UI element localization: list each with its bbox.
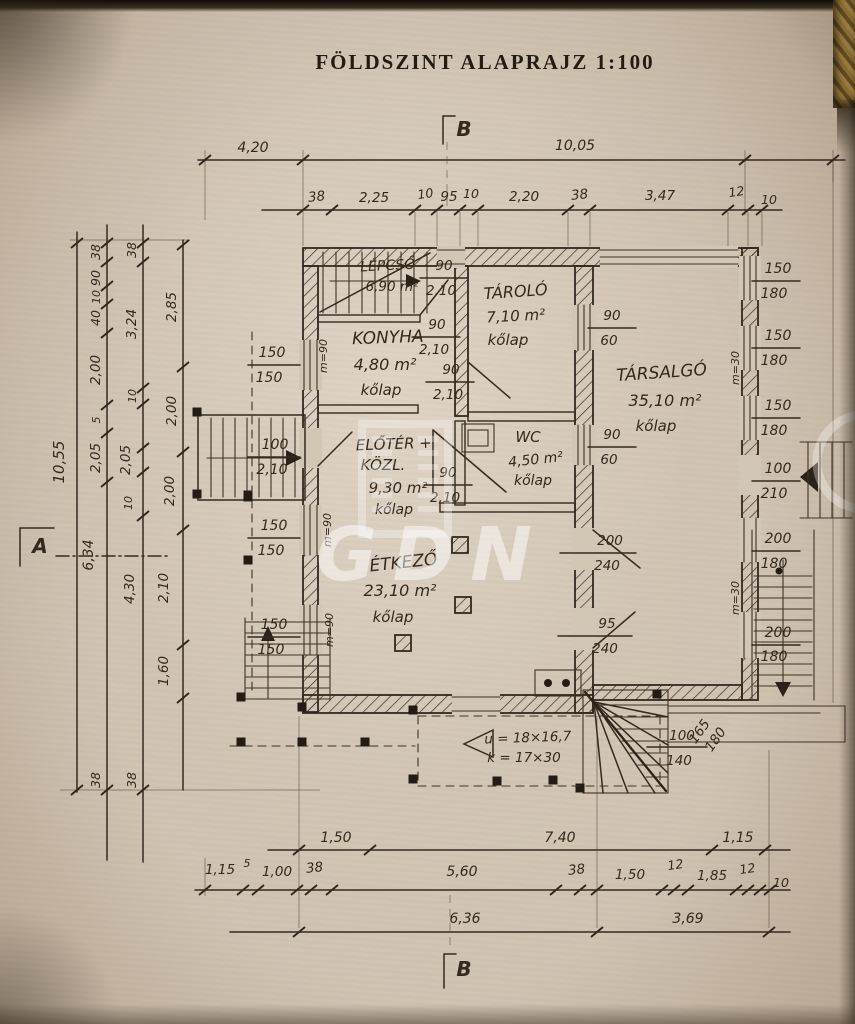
dim-label: 150	[765, 261, 792, 277]
dim-label: 150	[261, 617, 288, 633]
dim-label: 2,10	[156, 573, 172, 603]
dim-label: 2,00	[162, 476, 178, 506]
dim-label: 2,10	[426, 283, 456, 299]
room-floor: kőlap	[488, 331, 529, 349]
photo-bottom-edge	[0, 1004, 855, 1024]
dim-label: 150	[256, 370, 283, 386]
dim-label: 90	[88, 270, 103, 286]
dim-label: 180	[761, 649, 788, 665]
room-floor: kőlap	[636, 417, 677, 435]
dim-label: 180	[761, 286, 788, 302]
photo-corner-shadow-tl	[0, 0, 140, 150]
dim-label: 1,60	[156, 656, 172, 686]
dim-label: 1,50	[615, 867, 645, 883]
dim-label: 95	[440, 189, 457, 205]
floor-plan-drawing: 4,20 10,05 38 2,25 10 95 10 2,20 38 3,47…	[0, 0, 855, 1024]
photo-corner-fabric-tr	[833, 0, 855, 108]
dim-label: 60	[600, 452, 617, 468]
parapet-label: m=90	[317, 339, 330, 373]
watermark-text: GDN	[316, 512, 548, 598]
dim-label: 3,69	[672, 911, 703, 927]
dim-label: 1,85	[697, 868, 727, 884]
dim-label: 3,24	[124, 309, 140, 339]
dim-label: 2,85	[164, 292, 180, 322]
dim-label: 150	[261, 518, 288, 534]
dim-label: 5	[90, 417, 103, 424]
section-mark-b-top: B	[456, 117, 471, 141]
dim-label: 5,60	[446, 864, 477, 880]
dim-label: 90	[435, 258, 452, 274]
dim-label: 10	[761, 192, 777, 207]
top-dimension-lines	[198, 155, 845, 215]
dim-label: 10	[463, 186, 479, 201]
dim-label: 2,10	[256, 462, 287, 478]
dim-label: 38	[307, 188, 326, 206]
dim-label: 90	[428, 317, 445, 333]
dim-label: 200	[765, 531, 792, 547]
dim-label: 38	[88, 244, 103, 260]
dim-label: 1,15	[205, 862, 235, 878]
dim-label: 90	[603, 308, 620, 324]
photo-corner-shadow-bl	[0, 904, 120, 1024]
room-name: WC	[515, 428, 541, 446]
room-name: TÁRSALGÓ	[616, 358, 708, 386]
left-dimension-labels: 10,55 38 90 10 40 2,00 5 2,05 6,34 38 38…	[50, 242, 180, 788]
dim-label: 240	[592, 641, 618, 657]
dim-label: 5	[244, 857, 251, 870]
dim-label: 4,30	[122, 574, 138, 604]
dim-label: 12	[727, 183, 745, 200]
dim-label: 90	[442, 362, 459, 378]
parapet-label: m=30	[729, 351, 742, 385]
dim-label: 6,36	[449, 911, 480, 927]
dim-label: 1,15	[722, 830, 753, 846]
dim-label: 40	[88, 310, 103, 326]
top-dimension-labels: 4,20 10,05 38 2,25 10 95 10 2,20 38 3,47…	[237, 138, 777, 207]
stair-note: u = 18×16,7	[484, 728, 572, 747]
dim-label: 2,05	[118, 445, 134, 475]
bottom-dimension-labels: 1,50 7,40 1,15 1,15 5 1,00 38 5,60 38 1,…	[205, 830, 789, 927]
dim-label: 10	[773, 875, 789, 890]
dim-label: 1,50	[320, 830, 351, 846]
dim-label: 60	[600, 333, 617, 349]
dim-label: 2,00	[88, 355, 104, 385]
dim-label: 2,25	[359, 190, 389, 206]
dim-label: 180	[761, 556, 788, 572]
dim-label: 4,20	[237, 140, 268, 156]
dim-label: 38	[124, 772, 139, 788]
dim-label: 38	[570, 186, 589, 204]
dim-label: 200	[597, 533, 623, 549]
parapet-label: m=30	[729, 581, 742, 615]
dim-label: 2,10	[433, 387, 463, 403]
dim-label: 38	[567, 861, 586, 879]
dim-label: 10	[416, 185, 434, 202]
dim-label: 150	[258, 642, 285, 658]
dim-label: 240	[594, 558, 620, 574]
dim-label: 150	[259, 345, 286, 361]
dim-label: 150	[765, 398, 792, 414]
dim-label: 1,00	[262, 864, 292, 880]
stair-note: k = 17×30	[487, 750, 560, 766]
dim-label: 95	[598, 616, 615, 632]
dim-label: 140	[666, 753, 692, 769]
dim-label: 2,00	[164, 396, 180, 426]
room-area: 35,10 m²	[629, 391, 702, 410]
parapet-label: m=90	[323, 613, 336, 647]
dim-label: 12	[666, 856, 684, 873]
room-area: 6,90 m²	[366, 279, 420, 295]
room-area: 7,10 m²	[486, 305, 546, 326]
room-name: KONYHA	[352, 327, 424, 349]
dim-label: 180	[761, 423, 788, 439]
room-area: 4,80 m²	[354, 355, 417, 374]
room-floor: kőlap	[361, 381, 402, 399]
section-mark-b-bottom: B	[456, 957, 471, 981]
dim-label: 200	[765, 625, 792, 641]
dim-label: 7,40	[544, 830, 575, 846]
section-mark-a: A	[30, 534, 47, 558]
dim-label: 38	[124, 242, 139, 258]
dim-label: 2,20	[509, 189, 539, 205]
dim-label: 10	[126, 389, 139, 403]
stairs-entry-left	[193, 408, 306, 501]
dim-label: 10	[122, 496, 135, 510]
dim-label: 10	[90, 290, 103, 304]
left-opening-labels: 150 150 100 2,10 150 150 150 150	[248, 345, 300, 658]
room-name: TÁROLÓ	[483, 280, 548, 303]
dim-label: 150	[258, 543, 285, 559]
dim-label: 90	[603, 427, 620, 443]
photo-right-edge	[839, 100, 855, 1024]
dim-label: 10,05	[555, 138, 595, 154]
dim-label: 100	[262, 437, 289, 453]
dim-label: 150	[765, 328, 792, 344]
photographed-drawing: FÖLDSZINT ALAPRAJZ 1:100	[0, 0, 855, 1024]
dim-label: 3,47	[645, 188, 675, 204]
dim-label: 100	[765, 461, 792, 477]
room-floor: kőlap	[514, 473, 552, 489]
dim-label: 2,05	[88, 443, 104, 473]
dim-label: 210	[761, 486, 788, 502]
dim-label: 12	[738, 860, 756, 877]
dim-label: 10,55	[50, 441, 68, 484]
dim-label: 6,34	[81, 539, 97, 570]
room-floor: kőlap	[373, 608, 414, 626]
dim-label: 38	[88, 772, 103, 788]
dim-label: 38	[305, 859, 324, 877]
room-area: 4,50 m²	[507, 449, 564, 471]
dim-label: 180	[761, 353, 788, 369]
